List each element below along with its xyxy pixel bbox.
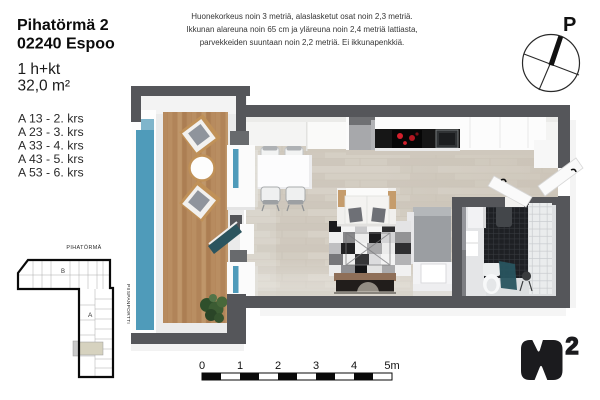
svg-text:0: 0	[199, 360, 205, 372]
svg-text:1: 1	[237, 360, 243, 372]
svg-text:Pihatörmä 2: Pihatörmä 2	[17, 17, 109, 34]
svg-text:A: A	[88, 312, 93, 319]
svg-text:1 h+kt: 1 h+kt	[18, 61, 61, 78]
svg-text:Huonekorkeus noin 3 metriä, al: Huonekorkeus noin 3 metriä, alaslasketut…	[191, 12, 412, 21]
svg-text:PIHATÖRMÄ: PIHATÖRMÄ	[66, 244, 101, 251]
svg-text:4: 4	[351, 360, 357, 372]
svg-text:Ikkunan alareuna noin 65 cm ja: Ikkunan alareuna noin 65 cm ja yläreuna …	[186, 25, 417, 34]
svg-text:3: 3	[313, 360, 319, 372]
svg-text:A 53 - 6. krs: A 53 - 6. krs	[18, 166, 84, 180]
svg-text:A 23 - 3. krs: A 23 - 3. krs	[18, 125, 84, 139]
svg-text:P: P	[563, 14, 576, 36]
svg-text:2: 2	[565, 333, 578, 360]
svg-text:A 43 - 5. krs: A 43 - 5. krs	[18, 152, 84, 166]
svg-text:A 33 - 4. krs: A 33 - 4. krs	[18, 139, 84, 153]
svg-text:32,0 m²: 32,0 m²	[18, 78, 71, 95]
svg-text:PIISPANPORTTI: PIISPANPORTTI	[125, 284, 131, 324]
svg-text:2: 2	[275, 360, 281, 372]
svg-text:A 13 - 2. krs: A 13 - 2. krs	[18, 112, 84, 126]
svg-text:5m: 5m	[384, 360, 399, 372]
svg-text:B: B	[61, 269, 65, 275]
svg-text:parvekkeiden suuntaan noin 2,2: parvekkeiden suuntaan noin 2,2 metriä. E…	[200, 38, 405, 47]
svg-text:02240 Espoo: 02240 Espoo	[17, 36, 115, 53]
